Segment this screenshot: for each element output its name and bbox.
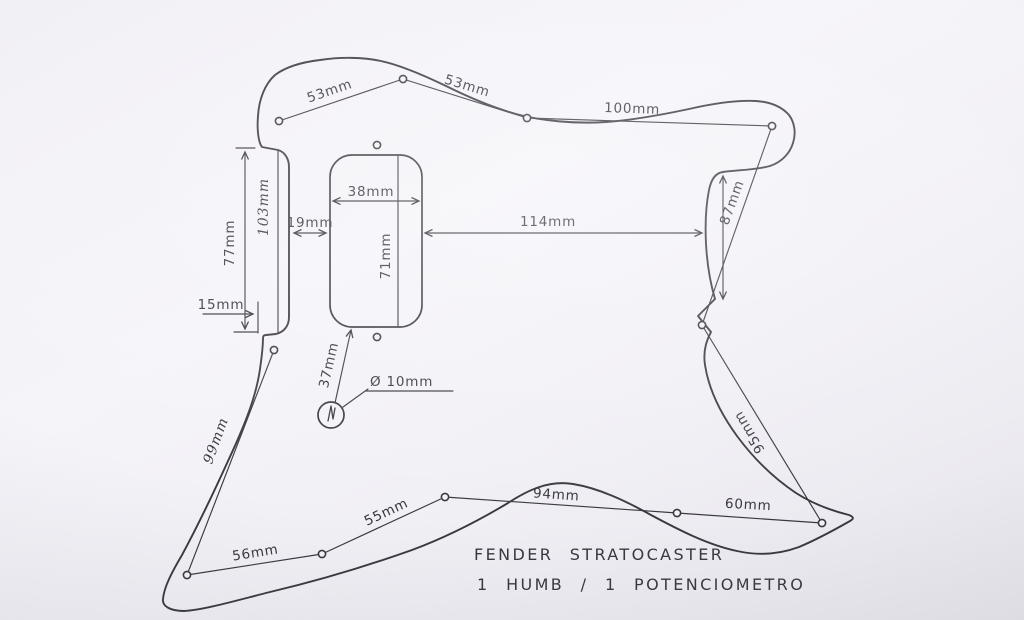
screw-hole [818,519,825,526]
screw-hole [373,333,380,340]
note-config: 1 HUMB / 1 POTENCIOMETRO [477,575,805,594]
dim-label-pot-diameter: Ø 10mm [370,374,433,390]
screw-hole [275,117,282,124]
screw-hole [768,122,775,129]
pickguard-sketch-canvas: 53mm 53mm 100mm 87mm 95mm 60mm 94mm 55mm… [0,0,1024,620]
humbucker-cutout [330,155,422,327]
dim-label-top-left-53: 53mm [305,76,354,106]
dim-label-left-99: 99mm [200,415,232,466]
screw-hole [183,571,190,578]
screw-hole [373,141,380,148]
pickguard-shape [163,58,853,611]
dim-label-38: 38mm [348,184,395,200]
dim-label-37: 37mm [316,341,342,390]
dimension-labels: 53mm 53mm 100mm 87mm 95mm 60mm 94mm 55mm… [198,72,772,565]
screw-hole [698,321,705,328]
dim-label-77: 77mm [222,220,238,267]
dim-line-37 [335,330,351,403]
notes: FENDER STRATOCASTER 1 HUMB / 1 POTENCIOM… [474,545,805,594]
screw-hole [673,509,680,516]
note-model: FENDER STRATOCASTER [474,545,724,564]
screw-hole [523,114,530,121]
dim-label-right-95: 95mm [731,408,769,456]
dim-label-103: 103mm [256,178,272,236]
dim-label-top-100: 100mm [604,100,661,118]
photo-of-sketch: 53mm 53mm 100mm 87mm 95mm 60mm 94mm 55mm… [0,0,1024,620]
dim-label-right-87: 87mm [717,178,748,227]
dim-label-bottom-94: 94mm [532,485,580,504]
screw-hole [270,346,277,353]
dim-label-bottom-60: 60mm [724,496,771,514]
dim-line-right-95 [702,325,822,523]
dim-line-bottom-60 [677,513,822,523]
dim-line-right-87 [702,126,772,325]
dim-label-19: 19mm [287,215,334,231]
screw-hole [441,493,448,500]
screw-hole [399,75,406,82]
screw-hole [318,550,325,557]
dim-label-15: 15mm [198,297,245,313]
pickguard-outline [163,58,853,611]
pot-hole-center-scribble [328,406,335,421]
dim-label-71: 71mm [378,233,394,280]
leader-pot-diameter [343,389,368,407]
dim-label-114: 114mm [520,214,576,230]
dim-line-left-99 [187,350,274,575]
